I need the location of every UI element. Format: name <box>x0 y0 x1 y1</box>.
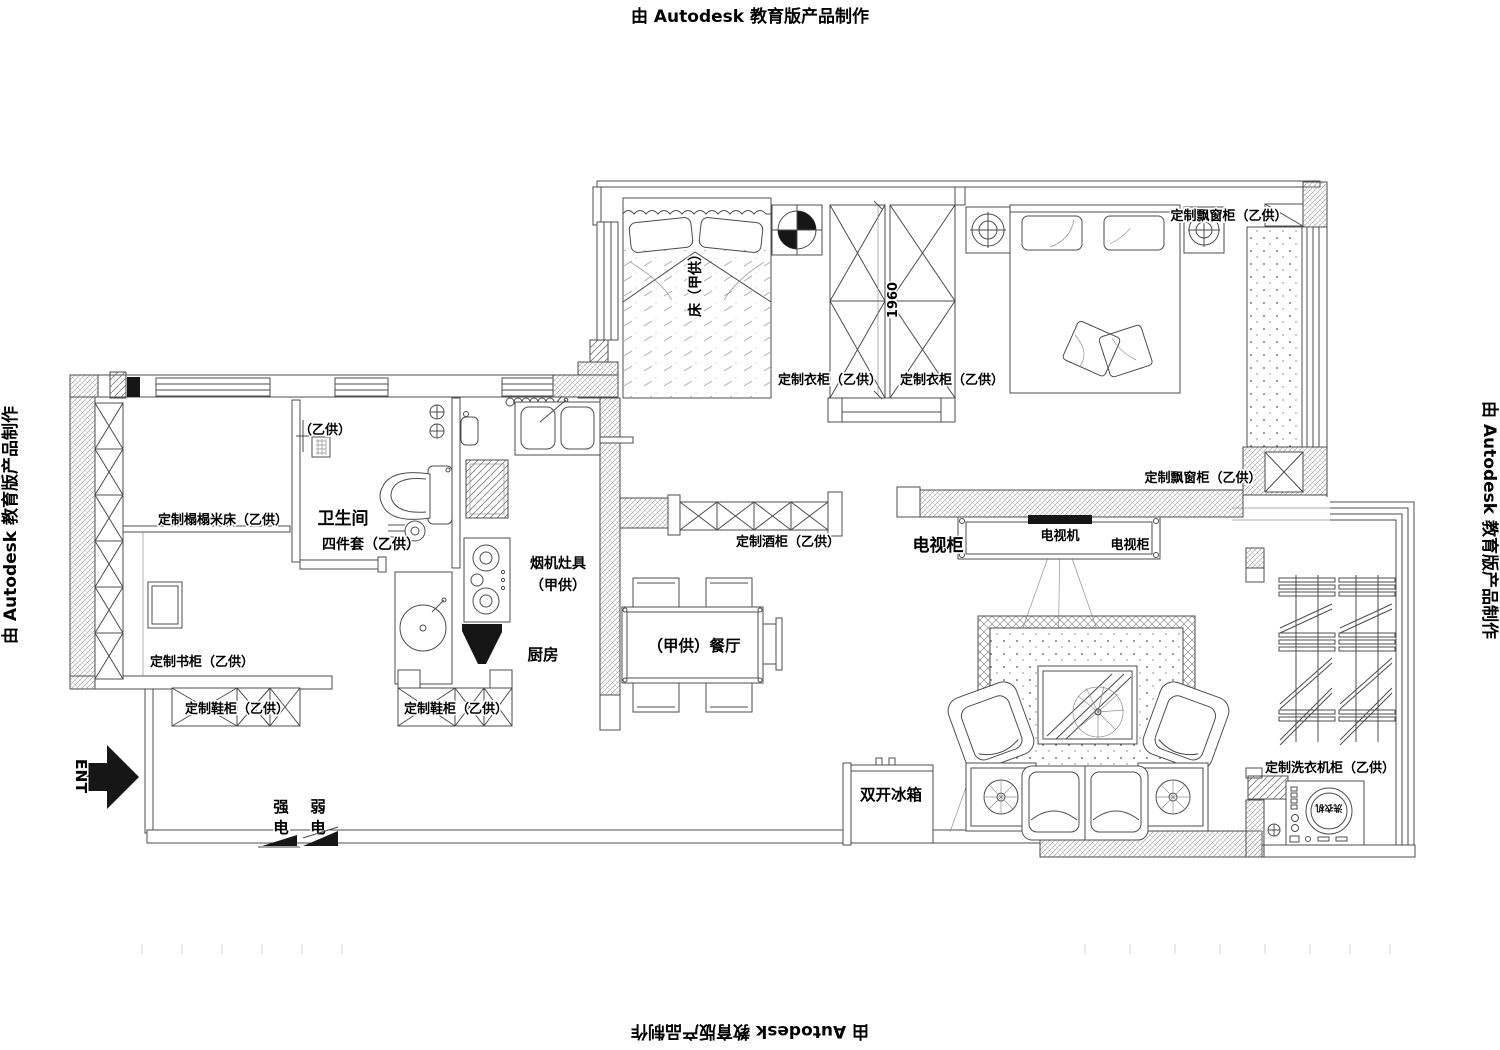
shoe-cabinet-left-label: 定制鞋柜（乙供） <box>184 701 289 717</box>
corner-unit <box>462 624 502 664</box>
wardrobe-1 <box>830 205 885 398</box>
coffee-table <box>1038 666 1137 744</box>
counter-hatch <box>466 460 508 518</box>
fridge: 双开冰箱 <box>843 758 933 845</box>
cooktop <box>464 538 510 622</box>
wash-counter <box>395 572 452 684</box>
dimension-1960-label: 1960 <box>886 282 901 318</box>
weak-power-label-bottom: 电 <box>310 818 326 837</box>
shoe-cabinet-right-label: 定制鞋柜（乙供） <box>403 701 508 717</box>
kitchen-label: 厨房 <box>527 645 558 664</box>
floor-plan-page: 由 Autodesk 教育版产品制作 由 Autodesk 教育版产品制作 由 … <box>0 0 1500 1050</box>
bed-master <box>1010 205 1180 393</box>
hood-label-line2: （甲供） <box>530 577 586 594</box>
bathroom-set-label: 四件套（乙供） <box>322 536 420 553</box>
bed-2-label: 床（甲供） <box>687 247 704 317</box>
bookcase-label: 定制书柜（乙供） <box>149 654 254 670</box>
nightstand-left <box>966 207 1010 253</box>
bay-window-mid-label: 定制飘窗柜（乙供） <box>1143 470 1261 486</box>
valve-icon <box>1268 824 1280 836</box>
dining-label: （甲供）餐厅 <box>647 636 741 655</box>
bathroom-supply-label: （乙供） <box>299 422 351 438</box>
shoe-cabinet-right: 定制鞋柜（乙供） <box>398 670 512 726</box>
desk <box>148 582 182 628</box>
bathroom-label: 卫生间 <box>318 508 369 529</box>
bedroom-2: 床（甲供） 1960 定制衣柜（乙供） 定制衣柜（乙供） <box>623 198 1004 422</box>
kettle-icon <box>461 412 478 446</box>
weak-power-label-top: 弱 <box>310 798 326 816</box>
wardrobe-2-label: 定制衣柜（乙供） <box>899 372 1004 388</box>
dimension-ticks <box>142 944 1390 954</box>
wine-cabinet: 定制酒柜（乙供） <box>668 492 842 550</box>
sink <box>515 398 600 455</box>
tatami-bed-label: 定制榻榻米床（乙供） <box>157 512 288 528</box>
bay-window-mid <box>1265 452 1303 492</box>
wardrobe-1-label: 定制衣柜（乙供） <box>777 372 882 388</box>
ceiling-lamp-icon <box>772 205 822 255</box>
fridge-label: 双开冰箱 <box>860 785 922 804</box>
hood-label-line1: 烟机灶具 <box>530 555 586 572</box>
bay-window-top <box>1247 204 1319 447</box>
entrance: ENT <box>72 745 139 809</box>
shoe-cabinet-left: 定制鞋柜（乙供） <box>172 688 300 726</box>
washer-label: 洗衣机 <box>1315 802 1342 814</box>
watermark-top: 由 Autodesk 教育版产品制作 <box>631 6 869 27</box>
dining-area: （甲供）餐厅 <box>622 578 782 712</box>
drying-rack-right <box>1339 575 1395 745</box>
drying-rack-left <box>1279 575 1335 745</box>
tv-screen <box>1028 515 1092 524</box>
strong-power-label-top: 强 <box>273 798 289 816</box>
watermark-bottom: 由 Autodesk 教育版产品制作 <box>631 1021 869 1042</box>
washing-machine: 洗衣机 <box>1286 781 1364 845</box>
floor-plan-drawing: 由 Autodesk 教育版产品制作 由 Autodesk 教育版产品制作 由 … <box>0 0 1500 1050</box>
toilet <box>380 466 452 524</box>
wardrobe-base <box>828 398 955 422</box>
entrance-arrow-head <box>107 745 139 809</box>
strong-power-label-bottom: 电 <box>273 818 289 837</box>
tv-cabinet-side-label: 电视柜 <box>1110 537 1149 553</box>
tv-set-label: 电视机 <box>1040 528 1079 544</box>
entrance-label: ENT <box>72 759 90 794</box>
laundry-cabinet-label: 定制洗衣机柜（乙供） <box>1264 760 1395 776</box>
kitchen: 烟机灶具 （甲供） 厨房 <box>395 396 600 684</box>
watermark-right: 由 Autodesk 教育版产品制作 <box>1479 401 1500 639</box>
water-point-icons <box>430 405 444 438</box>
wardrobe-strip <box>95 403 123 679</box>
watermark-left: 由 Autodesk 教育版产品制作 <box>0 406 21 644</box>
wine-cabinet-label: 定制酒柜（乙供） <box>735 534 840 550</box>
tv-cabinet-main-label: 电视柜 <box>913 535 964 556</box>
tatami-room: 定制榻榻米床（乙供） 定制书柜（乙供） <box>95 403 290 679</box>
sofa <box>1022 766 1148 840</box>
bay-window-top-label: 定制飘窗柜（乙供） <box>1169 208 1287 224</box>
living-room <box>944 616 1233 840</box>
bathroom: 卫生间 四件套（乙供） （乙供） <box>296 405 452 553</box>
